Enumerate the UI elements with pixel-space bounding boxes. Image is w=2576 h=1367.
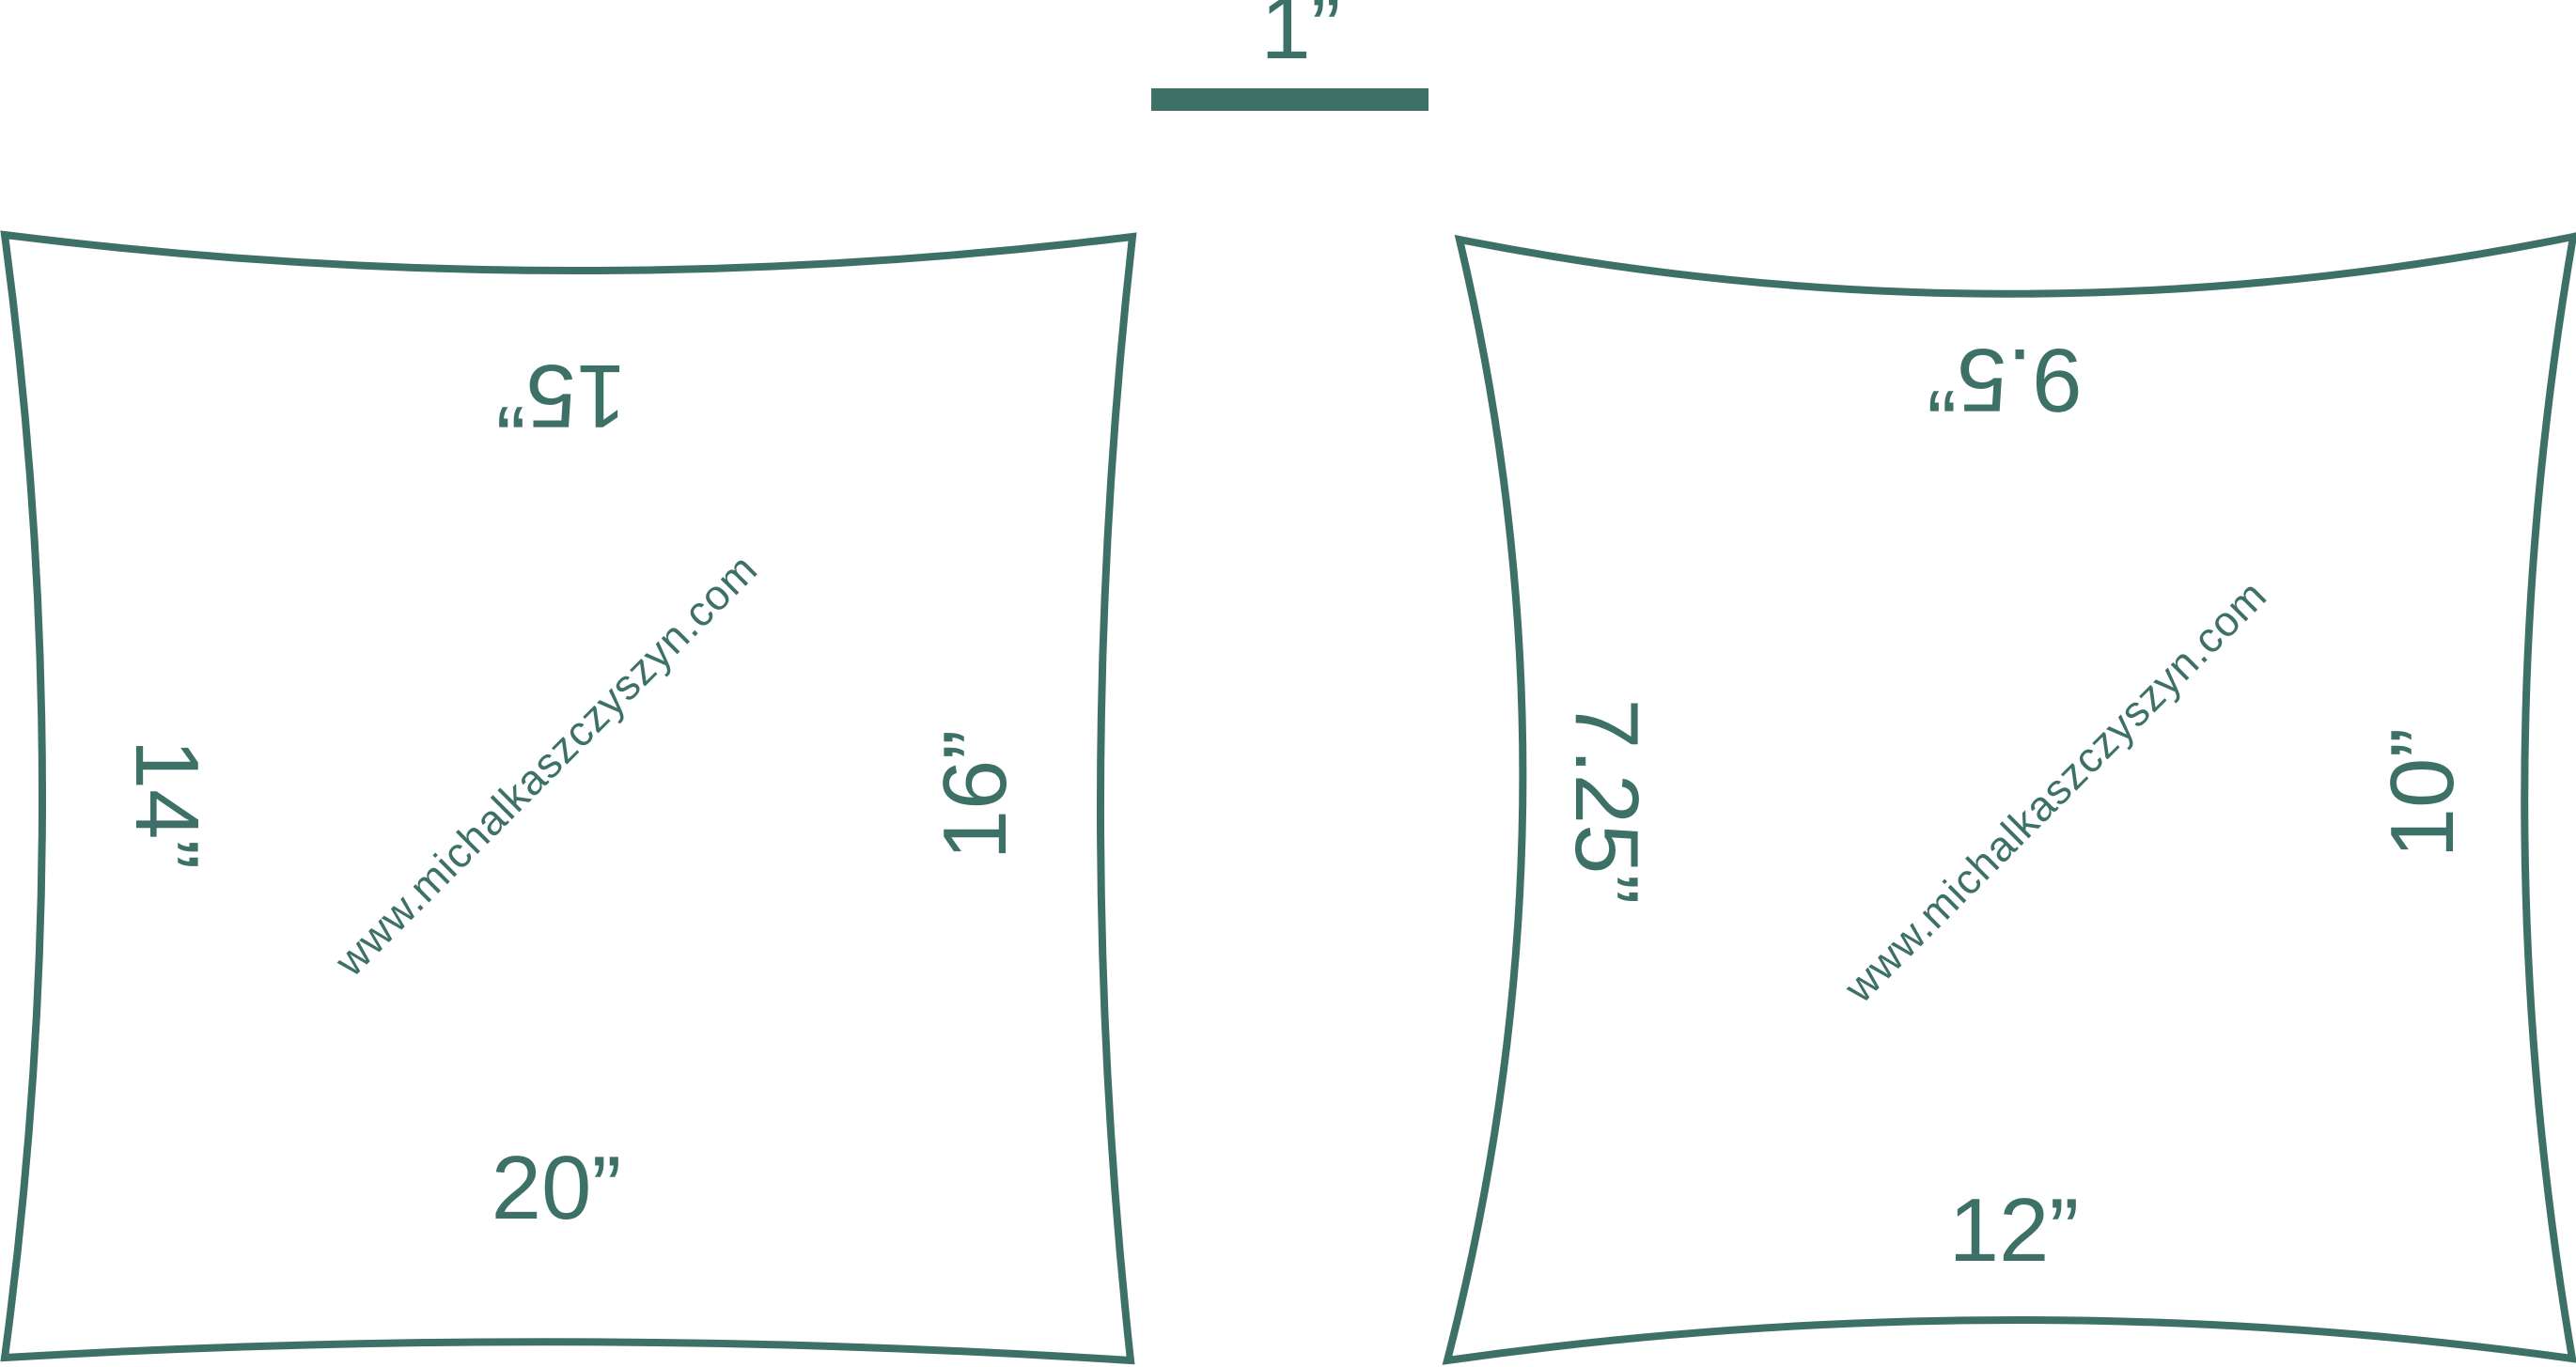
scale-bar — [1151, 88, 1429, 111]
left-piece-bottom-dimension: 20” — [492, 1143, 622, 1234]
left-piece-left-dimension: 14” — [121, 739, 211, 870]
right-piece-bottom-dimension: 12” — [1949, 1186, 2080, 1276]
left-piece-top-dimension: 15” — [496, 350, 627, 441]
left-piece-right-dimension: 16” — [930, 730, 1021, 861]
scale-label: 1” — [1260, 0, 1340, 73]
right-piece-right-dimension: 10” — [2378, 728, 2468, 859]
right-piece-top-dimension: 9.5” — [1927, 334, 2082, 425]
pattern-sheet: 1” 15” 14” 16” 20” www.michalkaszczyszyn… — [0, 0, 2576, 1367]
right-piece-left-dimension: 7.25” — [1561, 699, 1651, 905]
